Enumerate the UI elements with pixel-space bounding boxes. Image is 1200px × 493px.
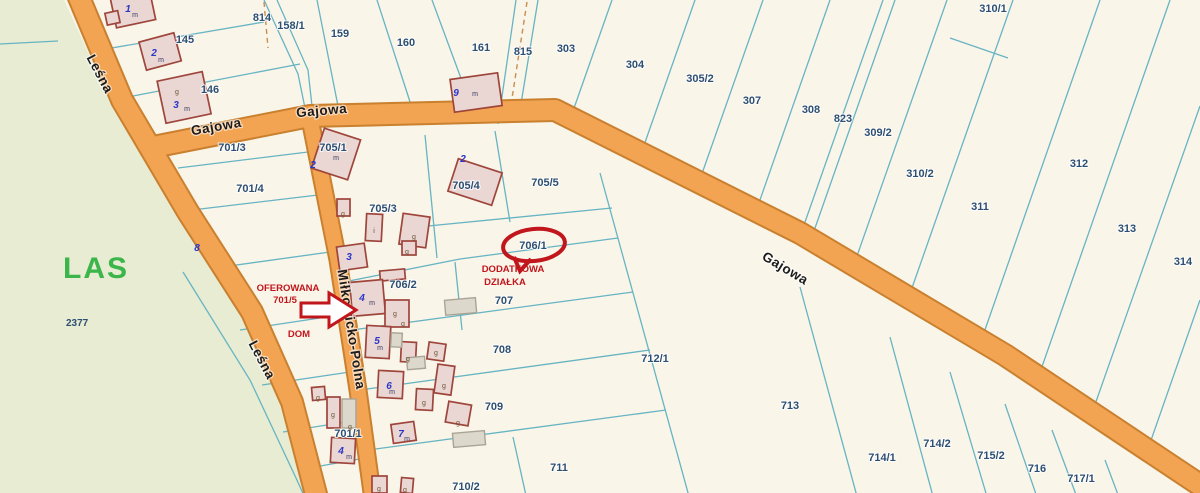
parcel-label: 705/3 — [369, 203, 397, 215]
parcel-label: 716 — [1028, 463, 1046, 475]
parcel-label: 310/1 — [979, 3, 1007, 15]
annotation-oferowana: OFEROWANA — [257, 283, 320, 294]
shed — [391, 333, 403, 348]
parcel-label: 309/2 — [864, 127, 892, 139]
building-mark: m — [333, 155, 339, 162]
building-mark: g — [175, 89, 179, 96]
building-mark: g — [401, 321, 405, 328]
annotation-dodatkowa: DODATKOWA — [482, 264, 545, 275]
parcel-label: 815 — [514, 46, 532, 58]
building — [336, 243, 367, 271]
parcel-label: 303 — [557, 43, 575, 55]
parcel-label: 711 — [550, 462, 568, 474]
address-number: 4 — [337, 446, 344, 457]
building-mark: g — [422, 400, 426, 407]
address-number: 3 — [346, 252, 352, 263]
parcel-label: 705/4 — [452, 180, 480, 192]
outbuilding — [434, 364, 455, 395]
parcel-label: 707 — [495, 295, 513, 307]
building-mark: m — [404, 436, 410, 443]
building-mark: g — [377, 486, 381, 493]
address-number: 1 — [125, 4, 131, 15]
address-number: 9 — [453, 88, 459, 99]
building — [105, 11, 120, 25]
annotation-oferowana-parcel: 701/5 — [273, 295, 297, 306]
parcel-label: 145 — [176, 34, 194, 46]
parcel-label: 705/1 — [319, 142, 347, 154]
building-mark: m — [369, 300, 375, 307]
parcel-label: 304 — [626, 59, 645, 71]
parcel-label: 717/1 — [1067, 473, 1095, 485]
parcel-label: 701/3 — [218, 142, 246, 154]
building-mark: g — [403, 487, 407, 493]
forest-label: LAS — [63, 252, 129, 285]
address-number: 4 — [358, 293, 365, 304]
cadastral-map[interactable]: LAS 2377 Leśna Gajowa Gajowa Gajowa Leśn… — [0, 0, 1200, 493]
building-mark: m — [184, 106, 190, 113]
parcel-label: 712/1 — [641, 353, 669, 365]
building-mark: g — [405, 249, 409, 256]
building-mark: m — [472, 91, 478, 98]
building-mark: m — [377, 345, 383, 352]
parcel-label: 709 — [485, 401, 503, 413]
parcel-label-circled: 706/1 — [519, 240, 547, 252]
outbuilding — [385, 300, 409, 327]
parcel-label: 314 — [1174, 256, 1193, 268]
annotation-dzialka: DZIAŁKA — [484, 277, 526, 288]
parcel-label: 701/4 — [236, 183, 264, 195]
address-number: 2 — [459, 154, 466, 165]
building-mark: g — [316, 395, 320, 402]
address-number: 3 — [173, 100, 179, 111]
parcel-label: 305/2 — [686, 73, 714, 85]
parcel-label: 714/2 — [923, 438, 951, 450]
parcel-label: 715/2 — [977, 450, 1005, 462]
annotation-dom: DOM — [288, 329, 310, 340]
address-number: 2 — [309, 160, 316, 171]
parcel-label: 161 — [472, 42, 490, 54]
building-mark: m — [158, 57, 164, 64]
building-mark: m — [389, 389, 395, 396]
shed — [452, 431, 485, 448]
parcel-label: 313 — [1118, 223, 1136, 235]
parcel-label: 158/1 — [277, 20, 305, 32]
parcel-label: 713 — [781, 400, 799, 412]
parcel-label: 160 — [397, 37, 415, 49]
building-mark: m — [346, 454, 352, 461]
parcel-label: 814 — [253, 12, 272, 24]
building-mark: g — [406, 356, 410, 363]
parcel-label: 311 — [971, 201, 989, 213]
building-mark: g — [393, 311, 397, 318]
parcel-label: 708 — [493, 344, 511, 356]
building-mark: m — [132, 12, 138, 19]
parcel-label: 714/1 — [868, 452, 896, 464]
shed — [444, 298, 476, 316]
building-mark: g — [348, 424, 352, 431]
parcel-label: 159 — [331, 28, 349, 40]
parcel-label: 705/5 — [531, 177, 559, 189]
address-number: 2 — [150, 48, 157, 59]
map-canvas[interactable]: LAS 2377 Leśna Gajowa Gajowa Gajowa Leśn… — [0, 0, 1200, 493]
building-mark: g — [434, 350, 438, 357]
parcel-label: 308 — [802, 104, 820, 116]
building-mark: g — [412, 234, 416, 241]
address-number: 8 — [194, 243, 200, 254]
parcel-label: 710/2 — [452, 481, 480, 493]
parcel-label: 706/2 — [389, 279, 417, 291]
parcel-label: 146 — [201, 84, 219, 96]
building-mark: g — [442, 383, 446, 390]
building-mark: g — [331, 412, 335, 419]
parcel-label: 312 — [1070, 158, 1088, 170]
parcel-label: 310/2 — [906, 168, 934, 180]
building-mark: g — [456, 420, 460, 427]
building — [157, 72, 211, 124]
parcel-label: 823 — [834, 113, 852, 125]
parcel-label: 307 — [743, 95, 761, 107]
forest-parcel-label: 2377 — [66, 318, 89, 329]
building-mark: g — [341, 211, 345, 218]
